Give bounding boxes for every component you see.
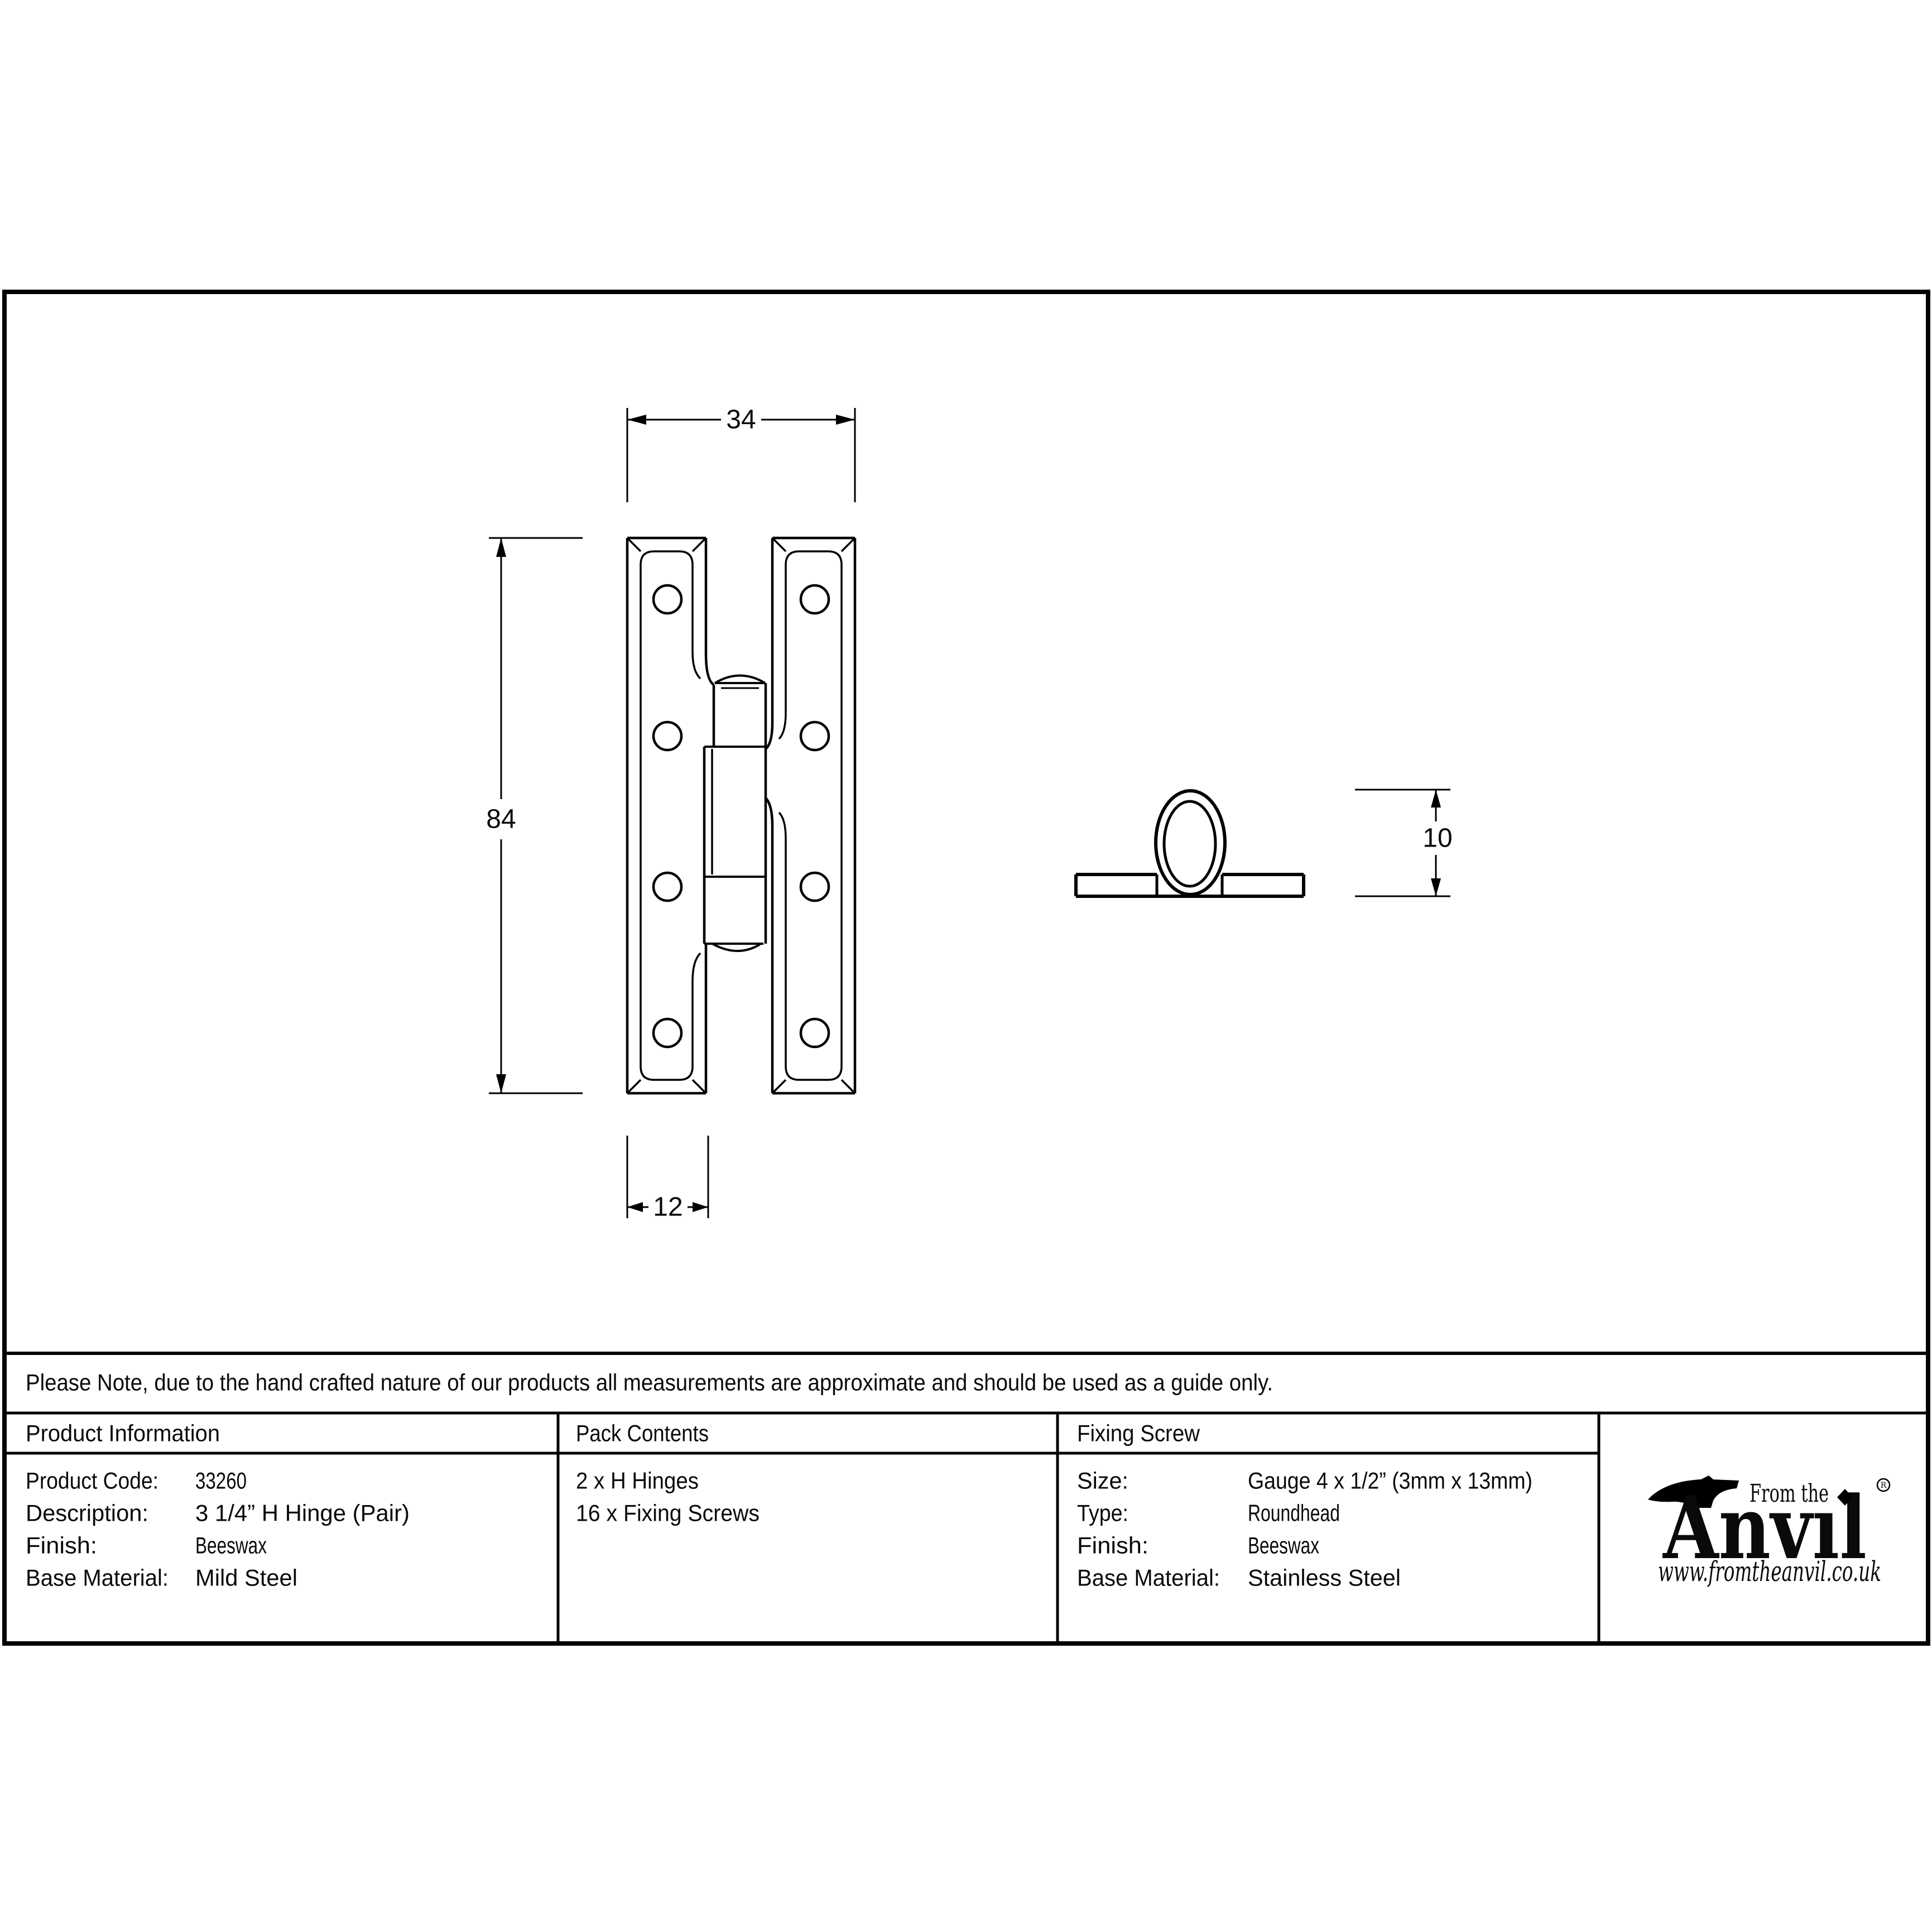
pin-cap-dome [715, 676, 765, 684]
spec-value: 3 1/4” H Hinge (Pair) [195, 1500, 410, 1526]
column-header-pack-contents: Pack Contents [576, 1420, 709, 1446]
spec-label: Type: [1077, 1500, 1128, 1526]
spec-label: Product Code: [26, 1468, 158, 1494]
arrowhead-right [836, 415, 855, 425]
spec-sheet-canvas: 34 84 12 10 Please Note, due to the hand… [0, 0, 1932, 1932]
screw-hole [801, 585, 829, 613]
spec-label: Description: [26, 1500, 148, 1526]
table-grid [4, 1353, 1928, 1643]
spec-value: Gauge 4 x 1/2” (3mm x 13mm) [1248, 1468, 1532, 1494]
pack-contents-cell: 2 x H Hinges 16 x Fixing Screws [576, 1468, 760, 1526]
dim-label-height: 84 [486, 805, 516, 834]
spec-value: Beeswax [195, 1532, 267, 1559]
arrowhead-down [496, 1074, 506, 1093]
screw-hole [653, 722, 681, 750]
dimension-leaf-width-12: 12 [627, 1136, 708, 1222]
outer-border [4, 292, 1928, 1643]
spec-label: Finish: [26, 1532, 97, 1559]
spec-value: Roundhead [1248, 1500, 1340, 1526]
spec-label: Base Material: [1077, 1565, 1220, 1591]
spec-value: Beeswax [1248, 1532, 1319, 1559]
product-information-cell: Product Code: 33260 Description: 3 1/4” … [26, 1468, 410, 1591]
spec-value: Stainless Steel [1248, 1565, 1401, 1591]
screw-hole [653, 585, 681, 613]
hinge-side-view [1076, 791, 1304, 896]
website-text: www.fromtheanvil.co.uk [1658, 1555, 1881, 1588]
right-leaf-bevel [779, 551, 842, 1080]
column-header-product-information: Product Information [26, 1420, 220, 1446]
dimension-knuckle-10: 10 [1355, 790, 1453, 896]
arrowhead-left [627, 415, 646, 425]
spec-label: Base Material: [26, 1565, 169, 1591]
screw-hole [801, 873, 829, 901]
hinge-knuckle [704, 676, 766, 951]
pin-bottom-dome [713, 944, 760, 951]
right-leaf [766, 538, 855, 1093]
anvil-logo: From the Anvıl R www.fromtheanvil.co.uk [1648, 1476, 1890, 1588]
dim-label-knuckle: 10 [1422, 824, 1452, 853]
spec-label: Finish: [1077, 1532, 1148, 1559]
arrowhead-left [627, 1202, 643, 1212]
screw-hole [653, 1019, 681, 1047]
hinge-front-view [627, 538, 855, 1093]
left-leaf [627, 538, 714, 1093]
left-leaf-bevel [641, 551, 700, 1080]
spec-value: 33260 [195, 1468, 247, 1494]
dim-label-width: 34 [726, 405, 756, 435]
screw-hole [801, 1019, 829, 1047]
screw-hole [653, 873, 681, 901]
pack-item: 16 x Fixing Screws [576, 1500, 760, 1526]
screw-holes [653, 585, 829, 1047]
dimension-width-34: 34 [627, 405, 855, 503]
registered-mark-letter: R [1881, 1481, 1887, 1490]
arrowhead-up [1431, 790, 1441, 808]
arrowhead-up [496, 538, 506, 557]
knuckle-ring-inner [1164, 801, 1215, 886]
dimension-height-84: 84 [486, 538, 583, 1093]
measurements-note: Please Note, due to the hand crafted nat… [26, 1369, 1273, 1396]
spec-label: Size: [1077, 1468, 1128, 1494]
column-header-fixing-screw: Fixing Screw [1077, 1420, 1200, 1446]
fixing-screw-cell: Size: Gauge 4 x 1/2” (3mm x 13mm) Type: … [1077, 1468, 1532, 1591]
screw-hole [801, 722, 829, 750]
spec-value: Mild Steel [195, 1565, 297, 1591]
pack-item: 2 x H Hinges [576, 1468, 699, 1494]
arrowhead-right [693, 1202, 708, 1212]
arrowhead-down [1431, 878, 1441, 896]
dim-label-leaf-width: 12 [653, 1193, 683, 1222]
spec-sheet: 34 84 12 10 Please Note, due to the hand… [0, 0, 1932, 1932]
registered-mark-icon: R [1877, 1479, 1890, 1491]
